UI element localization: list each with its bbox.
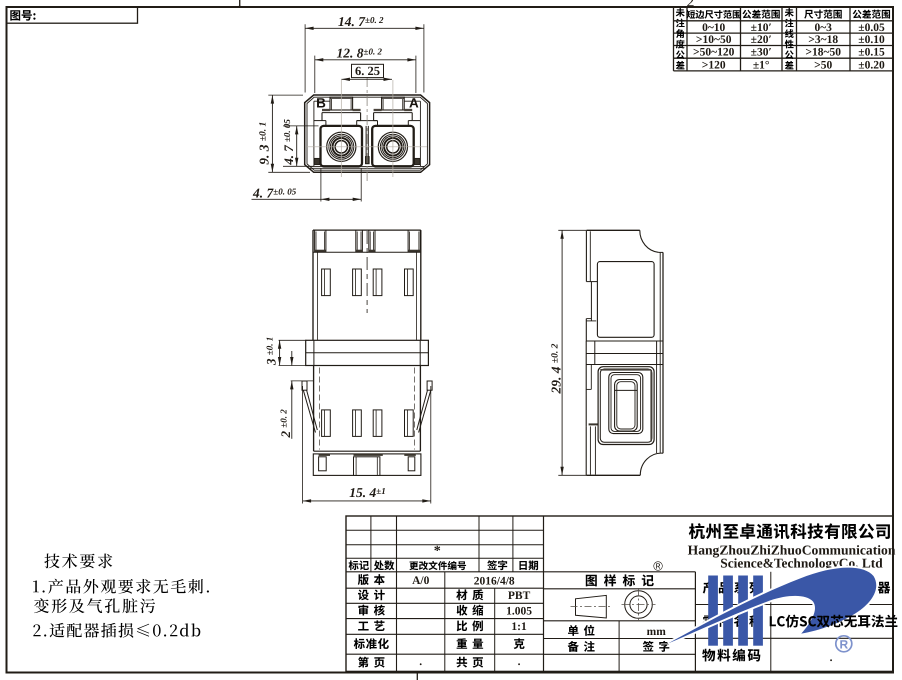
svg-text:9. 3 ±0. 1: 9. 3 ±0. 1 [257, 122, 272, 165]
svg-text:6. 25: 6. 25 [355, 64, 380, 78]
svg-text:±1°: ±1° [753, 59, 770, 71]
svg-text:15. 4±1: 15. 4±1 [349, 485, 385, 500]
svg-text:.: . [419, 656, 422, 668]
svg-text:*: * [434, 544, 441, 559]
svg-text:4. 7±0. 05: 4. 7±0. 05 [252, 186, 297, 201]
svg-text:>3~18: >3~18 [808, 34, 838, 46]
svg-text:±10′: ±10′ [751, 22, 772, 34]
svg-text:±0.15: ±0.15 [858, 47, 885, 59]
svg-text:1:1: 1:1 [511, 621, 527, 633]
svg-text:1.005: 1.005 [506, 606, 532, 618]
svg-text:±0.20: ±0.20 [858, 59, 885, 71]
svg-text:1: 1 [236, 0, 244, 11]
svg-text:±20′: ±20′ [751, 34, 772, 46]
svg-text:2: 2 [687, 0, 695, 11]
svg-text:>120: >120 [702, 59, 726, 71]
svg-text:12. 8±0. 2: 12. 8±0. 2 [337, 46, 383, 61]
svg-text:®: ® [653, 559, 663, 574]
svg-text:A/0: A/0 [412, 575, 430, 587]
svg-text:0~3: 0~3 [814, 22, 832, 34]
svg-text:>18~50: >18~50 [805, 47, 841, 59]
svg-text:.: . [830, 652, 833, 664]
svg-text:±30′: ±30′ [751, 47, 772, 59]
svg-text:>10~50: >10~50 [696, 34, 732, 46]
svg-text:R: R [839, 637, 848, 651]
svg-text:±0.10: ±0.10 [858, 34, 885, 46]
svg-text:HangZhouZhiZhuoCommunication: HangZhouZhiZhuoCommunication [688, 543, 896, 558]
svg-text:±0.05: ±0.05 [858, 22, 885, 34]
svg-text:PBT: PBT [508, 590, 531, 602]
svg-text:A: A [409, 96, 419, 111]
svg-text:B: B [316, 96, 326, 111]
svg-text:3 ±0. 1: 3 ±0. 1 [264, 337, 279, 366]
svg-text:>50: >50 [814, 59, 832, 71]
svg-text:0~10: 0~10 [702, 22, 725, 34]
svg-text:.: . [518, 656, 521, 668]
svg-text:2 ±0. 2: 2 ±0. 2 [278, 409, 293, 439]
svg-text:29. 4 ±0. 2: 29. 4 ±0. 2 [549, 343, 564, 394]
svg-text:14. 7±0. 2: 14. 7±0. 2 [338, 14, 384, 29]
svg-text:>50~120: >50~120 [693, 47, 735, 59]
svg-text:2016/4/8: 2016/4/8 [474, 576, 515, 588]
svg-text:mm: mm [647, 626, 667, 638]
